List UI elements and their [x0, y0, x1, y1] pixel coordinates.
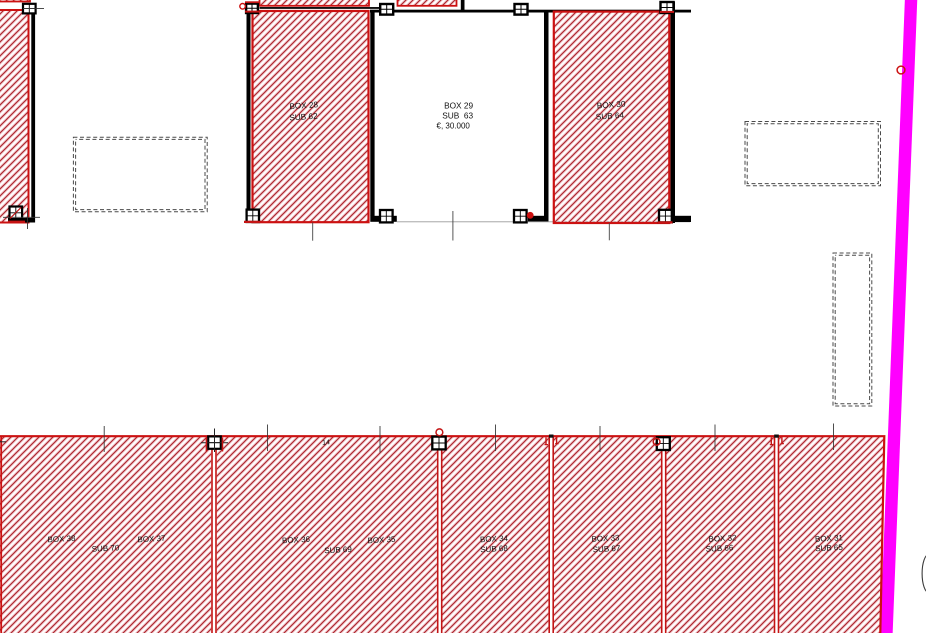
- svg-text:BOX 38: BOX 38: [47, 534, 76, 544]
- svg-text:BOX 36: BOX 36: [282, 535, 311, 545]
- svg-text:SUB 69: SUB 69: [324, 545, 353, 555]
- svg-text:BOX 37: BOX 37: [137, 534, 166, 544]
- svg-text:SUB 65: SUB 65: [815, 543, 844, 553]
- svg-text:BOX 34: BOX 34: [480, 534, 509, 544]
- svg-text:BOX 29: BOX 29: [444, 100, 473, 110]
- svg-text:14: 14: [322, 439, 330, 446]
- svg-text:BOX 33: BOX 33: [591, 533, 620, 543]
- svg-text:SUB 67: SUB 67: [592, 544, 621, 554]
- svg-text:SUB 66: SUB 66: [705, 543, 734, 553]
- svg-text:SUB 70: SUB 70: [91, 543, 120, 553]
- svg-text:BOX 35: BOX 35: [367, 535, 396, 545]
- svg-text:€, 30.000: €, 30.000: [437, 122, 471, 131]
- svg-text:BOX 32: BOX 32: [708, 533, 737, 543]
- svg-text:SUB 63: SUB 63: [442, 111, 473, 121]
- svg-text:SUB 68: SUB 68: [480, 544, 509, 554]
